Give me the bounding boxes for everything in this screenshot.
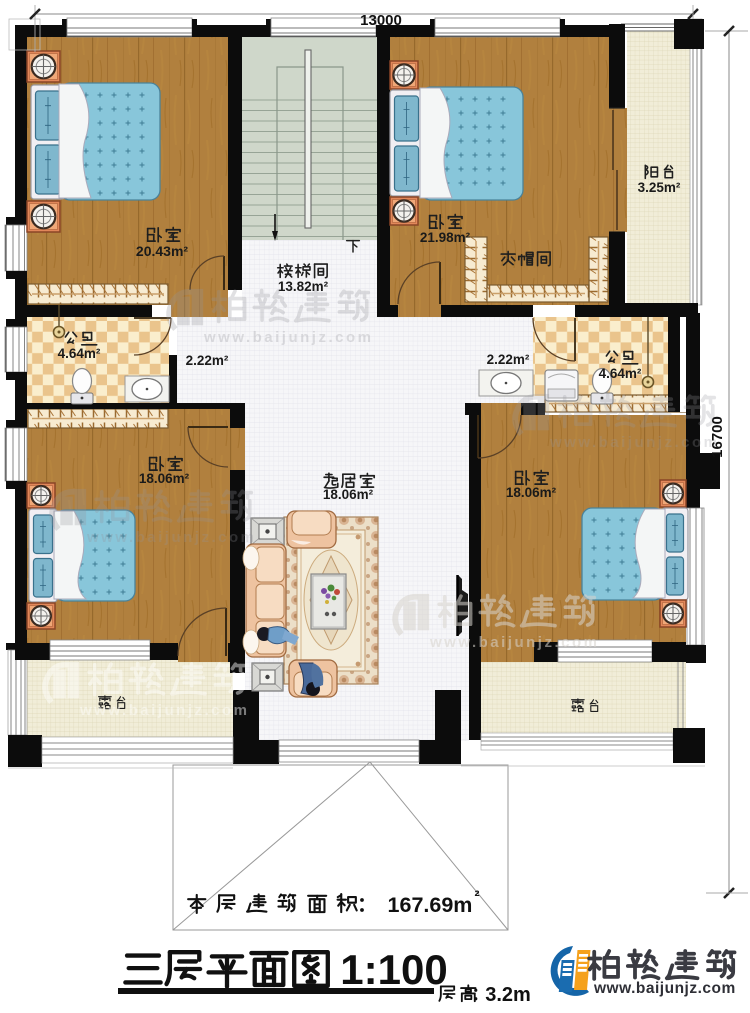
- svg-text:2.22m²: 2.22m²: [487, 352, 530, 367]
- svg-text:www.baijunjz.com: www.baijunjz.com: [593, 980, 736, 997]
- svg-text:www.baijunjz.com: www.baijunjz.com: [79, 702, 249, 719]
- svg-text:www.baijunjz.com: www.baijunjz.com: [86, 529, 256, 546]
- svg-text:www.baijunjz.com: www.baijunjz.com: [203, 329, 373, 346]
- svg-text:4.64m²: 4.64m²: [599, 366, 642, 381]
- svg-text:21.98m²: 21.98m²: [420, 230, 471, 245]
- svg-text:13.82m²: 13.82m²: [278, 279, 329, 294]
- svg-text:3.25m²: 3.25m²: [638, 180, 681, 195]
- svg-text:www.baijunjz.com: www.baijunjz.com: [549, 434, 719, 451]
- svg-text:：: ：: [357, 894, 377, 916]
- svg-text:18.06m²: 18.06m²: [139, 471, 190, 486]
- svg-text:3.2m: 3.2m: [485, 984, 531, 1006]
- svg-text:13000: 13000: [360, 12, 402, 29]
- svg-text:18.06m²: 18.06m²: [323, 487, 374, 502]
- svg-text:4.64m²: 4.64m²: [58, 346, 101, 361]
- svg-text:18.06m²: 18.06m²: [506, 485, 557, 500]
- svg-text:²: ²: [475, 888, 480, 905]
- svg-text:20.43m²: 20.43m²: [136, 243, 188, 259]
- svg-text:167.69m: 167.69m: [388, 893, 473, 917]
- svg-text:16700: 16700: [709, 416, 726, 458]
- svg-text:www.baijunjz.com: www.baijunjz.com: [429, 634, 599, 651]
- svg-text:1:100: 1:100: [340, 946, 447, 993]
- svg-text:2.22m²: 2.22m²: [186, 353, 229, 368]
